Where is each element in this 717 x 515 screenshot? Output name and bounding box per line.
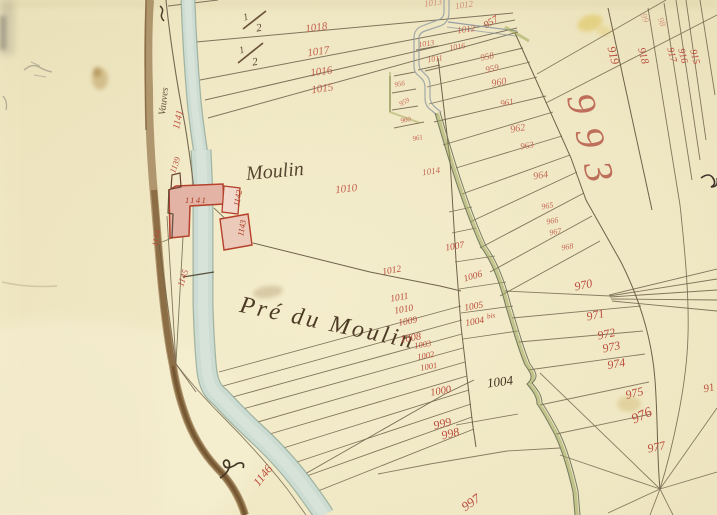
svg-text:1004: 1004: [486, 372, 514, 390]
svg-text:1141: 1141: [185, 195, 207, 205]
svg-text:1010: 1010: [335, 182, 359, 196]
svg-text:964: 964: [533, 169, 549, 182]
svg-text:bis: bis: [486, 311, 496, 320]
